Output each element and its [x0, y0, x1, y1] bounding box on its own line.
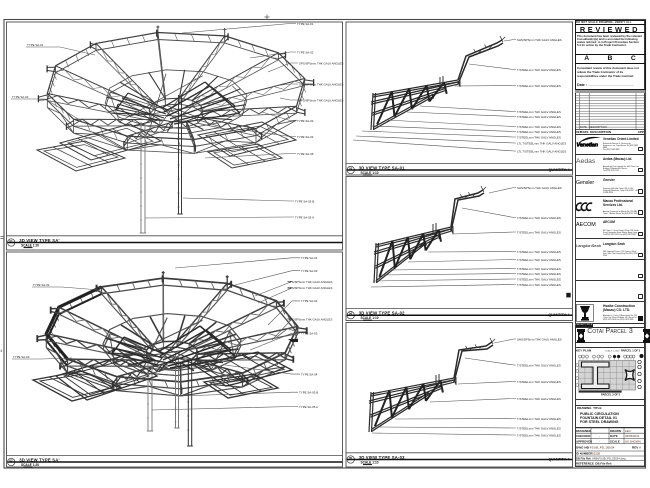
svg-text:LEO: LEO: [625, 429, 632, 433]
svg-text:SHS/SPSmm THK GALV ANGLES: SHS/SPSmm THK GALV ANGLES: [517, 337, 562, 341]
svg-text:DESIGNED: DESIGNED: [576, 429, 591, 433]
svg-text:CHECKED: CHECKED: [576, 434, 590, 438]
svg-text:TYPE SA-05 B: TYPE SA-05 B: [299, 391, 318, 395]
svg-text:TYPE SA-05 A: TYPE SA-05 A: [299, 405, 318, 409]
svg-text:Venetian: Venetian: [576, 143, 598, 149]
svg-text:LTL T/STEELmm THK GALV ANGLES: LTL T/STEELmm THK GALV ANGLES: [517, 141, 566, 145]
svg-text:APPROVED: APPROVED: [576, 440, 592, 444]
svg-text:LTL T/STEELmm THK GALV ANGLES: LTL T/STEELmm THK GALV ANGLES: [517, 149, 566, 153]
svg-text:T/STEELmm THK GALV ANGLES: T/STEELmm THK GALV ANGLES: [517, 267, 561, 271]
svg-text:ID NUMBER: ID NUMBER: [576, 452, 593, 456]
svg-text:TYPE SA-02: TYPE SA-02: [12, 95, 29, 99]
svg-text:T/STEELmm THK GALV ANGLES: T/STEELmm THK GALV ANGLES: [517, 272, 561, 276]
svg-text:T/STEELmm THK GALV ANGLES: T/STEELmm THK GALV ANGLES: [517, 110, 561, 114]
svg-text:04/05/2011: 04/05/2011: [625, 434, 640, 438]
svg-text:-: -: [599, 434, 600, 438]
svg-text:TYPE SA-02: TYPE SA-02: [301, 269, 318, 273]
svg-text:T/STEELmm THK GALV ANGLES: T/STEELmm THK GALV ANGLES: [517, 426, 561, 430]
svg-text:TYPE SA-01: TYPE SA-01: [27, 43, 44, 47]
svg-text:DRAWN: DRAWN: [610, 429, 621, 433]
svg-text:KEY PLAN: KEY PLAN: [576, 348, 591, 352]
svg-text:TYPE SA-04: TYPE SA-04: [301, 372, 318, 376]
svg-text:TYPE SA-02: TYPE SA-02: [297, 119, 314, 123]
svg-text:SHS/SPSmm THK GALV ANGLES: SHS/SPSmm THK GALV ANGLES: [517, 38, 562, 42]
svg-text:T/STEELmm THK GALV ANGLES: T/STEELmm THK GALV ANGLES: [517, 230, 561, 234]
svg-text:SPS/SPSmm THK GALV ANGLES: SPS/SPSmm THK GALV ANGLES: [288, 317, 332, 321]
svg-text:SPS/SPSmm THK GALV ANGLES: SPS/SPSmm THK GALV ANGLES: [299, 82, 343, 86]
svg-text:TYPE SA-02: TYPE SA-02: [297, 50, 314, 54]
svg-text:SPS/SPSmm THK GALV ANGLES: SPS/SPSmm THK GALV ANGLES: [299, 98, 343, 102]
svg-text:TYPE SA-05 B: TYPE SA-05 B: [295, 199, 314, 203]
svg-text:T/STEELmm THK GALV ANGLES: T/STEELmm THK GALV ANGLES: [517, 283, 561, 287]
svg-text:TYPE SA-05 A: TYPE SA-05 A: [295, 215, 314, 219]
svg-text:T/STEELmm THK GALV ANGLES: T/STEELmm THK GALV ANGLES: [517, 216, 561, 220]
svg-text:T/STEELmm THK GALV ANGLES: T/STEELmm THK GALV ANGLES: [517, 84, 561, 88]
svg-text:T/STEELmm THK GALV ANGLES: T/STEELmm THK GALV ANGLES: [517, 115, 561, 119]
svg-text:AS SHOWN: AS SHOWN: [625, 440, 641, 444]
svg-text:TYPE SA-01: TYPE SA-01: [301, 256, 318, 260]
svg-text:TYPE SA-03: TYPE SA-03: [301, 332, 318, 336]
svg-text:DATE DESCRIPTION: DATE DESCRIPTION: [580, 125, 607, 129]
svg-text:TYPE SA-03: TYPE SA-03: [13, 355, 30, 359]
svg-text:TYPE SA-05: TYPE SA-05: [297, 152, 314, 156]
svg-text:REFERENCE DB File Ref:: REFERENCE DB File Ref:: [576, 462, 612, 466]
svg-text:T/STEELmm THK GALV ANGLES: T/STEELmm THK GALV ANGLES: [517, 250, 561, 254]
svg-text:T/STEELmm THK GALV ANGLES: T/STEELmm THK GALV ANGLES: [517, 433, 561, 437]
svg-text:T/STEELmm THK GALV ANGLES: T/STEELmm THK GALV ANGLES: [517, 397, 561, 401]
svg-text:T/STEELmm THK GALV ANGLES: T/STEELmm THK GALV ANGLES: [517, 258, 561, 262]
svg-text:T/STEELmm THK GALV ANGLES: T/STEELmm THK GALV ANGLES: [517, 130, 561, 134]
svg-text:T/STEELmm THK GALV ANGLES: T/STEELmm THK GALV ANGLES: [517, 277, 561, 281]
svg-text:SCALE 1:2500: SCALE 1:2500: [605, 349, 620, 352]
svg-text:SCALE: SCALE: [610, 440, 620, 444]
svg-text:01528: 01528: [592, 452, 600, 456]
svg-text:SHS/SPSmm THK GALV ANGLES: SHS/SPSmm THK GALV ANGLES: [517, 186, 562, 190]
svg-text:SPS/SPSmm THK GALV ANGLES: SPS/SPSmm THK GALV ANGLES: [288, 280, 332, 284]
svg-text:T/STEELmm THK GALV ANGLES: T/STEELmm THK GALV ANGLES: [517, 68, 561, 72]
svg-text:PARCEL 1 OF 3: PARCEL 1 OF 3: [621, 348, 641, 352]
svg-text:TYPE SA-02: TYPE SA-02: [301, 299, 318, 303]
svg-text:SPS/SPSmm THK GALV ANGLES: SPS/SPSmm THK GALV ANGLES: [288, 286, 332, 290]
svg-text:TYPE SA-03: TYPE SA-03: [297, 135, 314, 139]
svg-text:T/STEELmm THK GALV ANGLES: T/STEELmm THK GALV ANGLES: [517, 363, 561, 367]
svg-text:T/STEELmm THK GALV ANGLES: T/STEELmm THK GALV ANGLES: [517, 125, 561, 129]
svg-text:A: A: [639, 446, 642, 450]
svg-text:DB File Ref: ARB-FSUB_PD_05034: DB File Ref: ARB-FSUB_PD_05034.dwg: [576, 457, 626, 461]
svg-text:SPS/SPSmm THK GALV ANGLES: SPS/SPSmm THK GALV ANGLES: [299, 61, 343, 65]
svg-text:1-FSUB_PD_05034: 1-FSUB_PD_05034: [587, 446, 615, 450]
svg-text:DATE: DATE: [610, 434, 618, 438]
svg-text:T/STEELmm THK GALV ANGLES: T/STEELmm THK GALV ANGLES: [517, 135, 561, 139]
svg-text:TYPE SA-02: TYPE SA-02: [33, 283, 50, 287]
svg-text:TYPE SA-01: TYPE SA-01: [297, 22, 314, 26]
svg-text:PARCEL 3 OF 3: PARCEL 3 OF 3: [601, 392, 621, 396]
svg-text:T/STEELmm THK GALV ANGLES: T/STEELmm THK GALV ANGLES: [517, 417, 561, 421]
svg-text:T/STEELmm THK GALV ANGLES: T/STEELmm THK GALV ANGLES: [517, 380, 561, 384]
svg-text:-: -: [599, 440, 600, 444]
